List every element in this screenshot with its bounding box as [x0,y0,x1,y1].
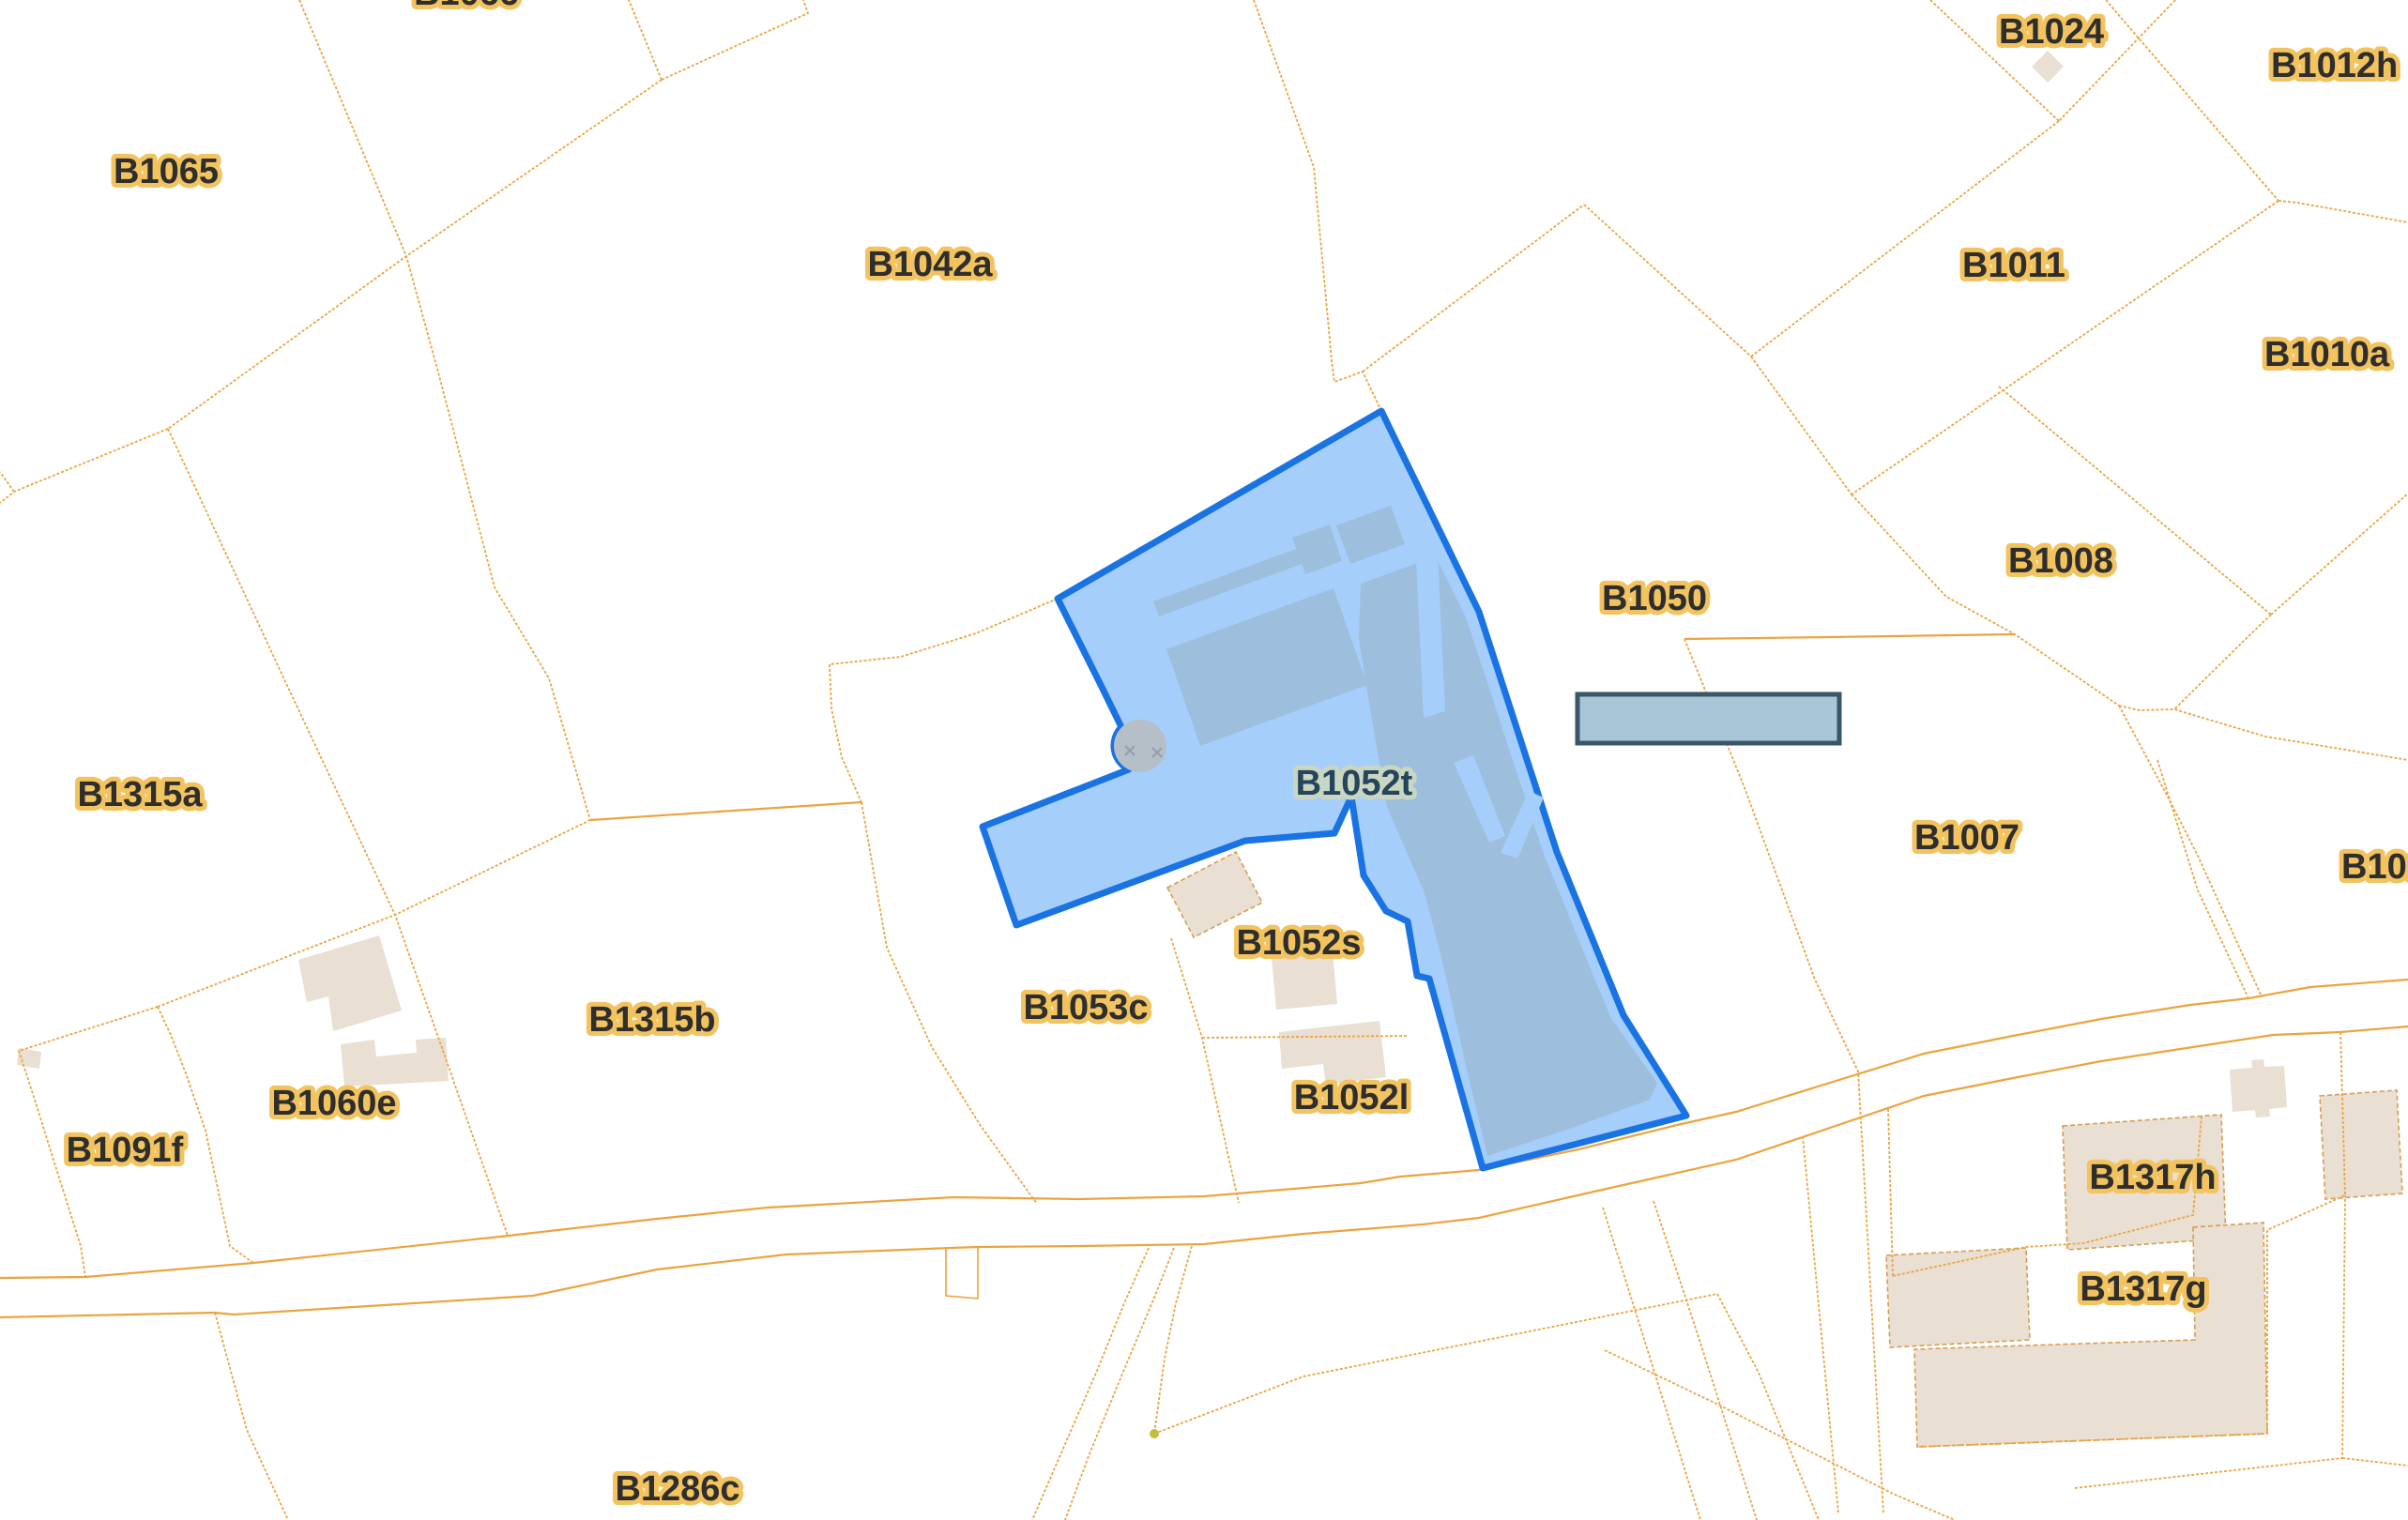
svg-text:B1315a: B1315a [77,775,203,814]
svg-text:B1052l: B1052l [1294,1078,1410,1117]
svg-text:B1012h: B1012h [2271,46,2398,85]
svg-text:B1050: B1050 [1602,579,1707,618]
svg-text:B1015: B1015 [2341,847,2408,887]
svg-text:B1042a: B1042a [867,245,993,284]
svg-text:B1024: B1024 [1999,12,2104,52]
svg-text:B1010a: B1010a [2264,335,2390,374]
svg-text:B1091f: B1091f [67,1131,184,1170]
svg-text:B1060e: B1060e [271,1084,396,1123]
svg-text:B1052t: B1052t [1296,764,1413,803]
svg-text:B1007: B1007 [1914,818,2019,858]
svg-text:B1286c: B1286c [615,1469,739,1509]
svg-text:B1011: B1011 [1962,246,2065,285]
svg-text:B1317g: B1317g [2080,1269,2206,1309]
svg-text:B1052s: B1052s [1236,923,1361,963]
svg-text:B1066: B1066 [414,0,519,13]
svg-text:B1315b: B1315b [588,1000,715,1040]
svg-text:B1317h: B1317h [2089,1158,2216,1197]
svg-text:B1008: B1008 [2008,541,2113,581]
svg-text:B1065: B1065 [114,152,219,191]
svg-text:B1053c: B1053c [1023,988,1148,1027]
